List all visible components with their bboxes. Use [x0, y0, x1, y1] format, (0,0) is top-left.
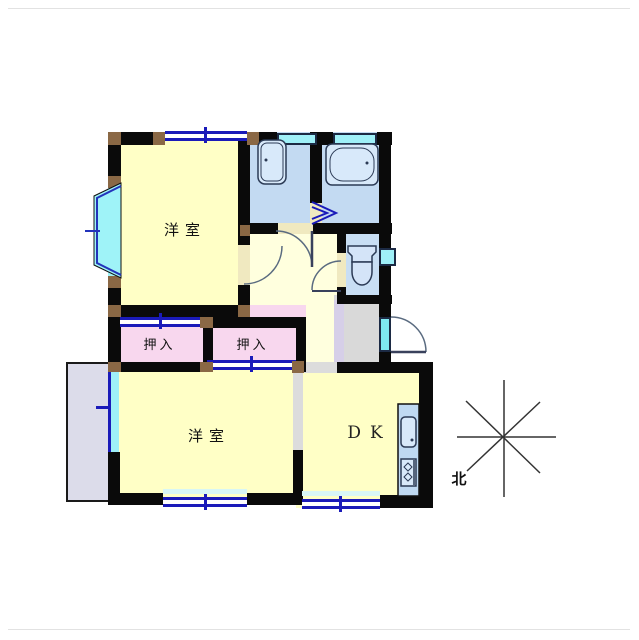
corner-post: [108, 276, 121, 288]
room2-left-window: [108, 370, 119, 452]
washroom-window: [277, 133, 317, 145]
corner-post: [238, 305, 250, 317]
corner-post: [108, 132, 121, 145]
washroom-door-gap: [278, 223, 313, 234]
wall: [108, 362, 207, 372]
page-border-bottom: [8, 629, 630, 630]
corner-post: [108, 305, 121, 317]
wall: [108, 493, 163, 505]
window-tick: [339, 496, 342, 512]
wall: [379, 132, 391, 248]
room1-door-gap: [238, 245, 250, 285]
window-tick: [250, 356, 253, 372]
bay-window-opening: [108, 185, 121, 276]
toilet-door-gap: [337, 253, 346, 287]
wall: [293, 450, 303, 505]
bathroom-window: [333, 133, 377, 145]
wall: [337, 234, 346, 253]
wall: [379, 266, 391, 317]
room2-dk-opening: [293, 372, 303, 450]
entrance-door-arc: [391, 317, 426, 352]
north-label: 北: [447, 468, 471, 489]
window-tick: [159, 313, 162, 329]
window-tick: [204, 494, 207, 510]
compass-icon: [457, 380, 556, 497]
wall: [419, 362, 433, 508]
room2-label: 洋室: [164, 425, 248, 446]
corner-post: [153, 132, 165, 145]
toilet-window: [379, 248, 396, 266]
entrance-door-panel: [379, 317, 391, 352]
corner-post: [108, 362, 121, 372]
balcony-box: [66, 362, 112, 502]
closet-right-label: 押入: [216, 334, 286, 353]
window-tick: [204, 127, 207, 143]
window-tick: [96, 406, 111, 409]
corner-post: [292, 361, 304, 373]
corner-post: [108, 176, 121, 188]
floor-plan: 洋室 押入 押入 洋室 DK 北: [0, 0, 639, 640]
corner-post: [240, 225, 250, 236]
room1-label: 洋室: [140, 219, 224, 240]
corner-post: [200, 317, 213, 328]
wall: [213, 317, 306, 328]
page-border-top: [8, 8, 630, 9]
corner-post: [247, 132, 259, 145]
dk-label: DK: [330, 423, 400, 443]
genkan-step: [334, 300, 344, 362]
corner-post: [200, 362, 213, 372]
wall: [108, 305, 250, 317]
closet-left-label: 押入: [123, 334, 193, 353]
wall: [250, 223, 278, 234]
